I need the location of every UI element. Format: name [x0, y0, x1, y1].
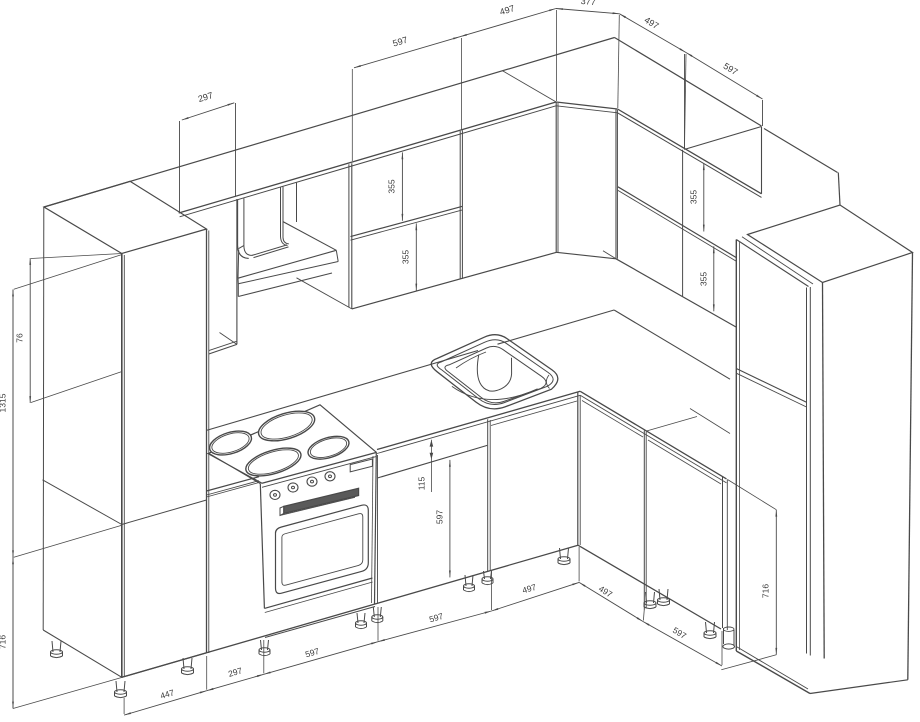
- svg-text:355: 355: [401, 250, 411, 264]
- svg-text:597: 597: [722, 61, 740, 77]
- svg-text:597: 597: [435, 510, 445, 524]
- svg-text:355: 355: [689, 190, 699, 204]
- svg-text:297: 297: [197, 90, 214, 104]
- svg-text:497: 497: [499, 3, 516, 17]
- svg-text:597: 597: [304, 646, 321, 660]
- svg-text:497: 497: [521, 582, 538, 596]
- svg-text:355: 355: [387, 179, 397, 193]
- svg-text:497: 497: [597, 583, 615, 599]
- svg-text:297: 297: [227, 665, 244, 679]
- svg-text:1315: 1315: [0, 393, 8, 412]
- svg-text:377: 377: [580, 0, 596, 7]
- svg-text:597: 597: [392, 35, 409, 49]
- svg-text:115: 115: [417, 476, 427, 490]
- svg-text:597: 597: [428, 611, 445, 625]
- svg-text:716: 716: [0, 635, 8, 649]
- svg-text:355: 355: [699, 272, 709, 286]
- svg-text:447: 447: [159, 687, 176, 701]
- svg-text:76: 76: [15, 333, 25, 343]
- svg-text:716: 716: [761, 584, 771, 598]
